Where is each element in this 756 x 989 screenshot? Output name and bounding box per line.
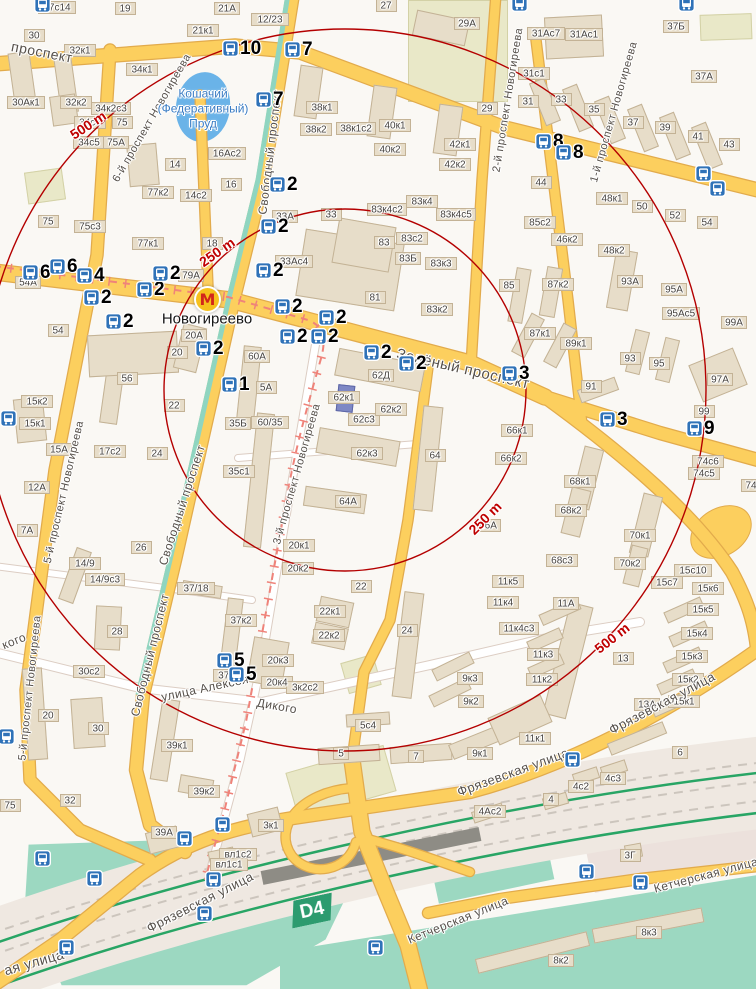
bus-icon bbox=[363, 344, 380, 361]
bus-icon bbox=[228, 666, 245, 683]
building-label: 5с4 bbox=[360, 721, 376, 732]
building-label: 79А bbox=[182, 271, 200, 282]
building-label: 9к1 bbox=[472, 749, 488, 760]
building-label: 83с2 bbox=[401, 234, 423, 245]
bus-stop-number: 10 bbox=[240, 39, 261, 58]
building-label: 24 bbox=[401, 626, 412, 637]
building-label: 97А bbox=[711, 375, 729, 386]
bus-stop[interactable] bbox=[318, 309, 335, 326]
bus-stop[interactable] bbox=[678, 0, 695, 12]
building-label: 11к5 bbox=[498, 577, 518, 588]
building-label: 20к1 bbox=[288, 541, 309, 552]
bus-stop-number: 2 bbox=[328, 327, 339, 346]
building bbox=[87, 331, 179, 378]
building-label: 83к2 bbox=[426, 305, 447, 316]
building-label: 75 bbox=[116, 118, 127, 129]
bus-stop[interactable] bbox=[310, 328, 327, 345]
building-label: 15к6 bbox=[697, 584, 718, 595]
building-label: 29А bbox=[458, 19, 476, 30]
building-label: 32к2 bbox=[65, 98, 86, 109]
building-label: 66к2 bbox=[500, 454, 521, 465]
building-label: 7А bbox=[21, 526, 33, 537]
building-label: 11к4 bbox=[493, 598, 513, 609]
bus-icon bbox=[599, 411, 616, 428]
park bbox=[428, 826, 555, 903]
bus-stop[interactable] bbox=[86, 870, 103, 887]
bus-stop[interactable] bbox=[578, 863, 595, 880]
bus-icon bbox=[49, 258, 66, 275]
building-label: 75 bbox=[4, 801, 15, 812]
building-label: 4с3 bbox=[605, 774, 621, 785]
building-label: 91 bbox=[585, 382, 596, 393]
bus-stop[interactable] bbox=[152, 265, 169, 282]
building-label: 64 bbox=[429, 451, 440, 462]
building-label: 22 bbox=[168, 401, 179, 412]
bus-icon bbox=[22, 264, 39, 281]
building-label: 11к3 bbox=[533, 650, 553, 661]
building-label: 11к2 bbox=[532, 675, 552, 686]
building-label: 29 bbox=[481, 104, 492, 115]
bus-icon bbox=[195, 340, 212, 357]
bus-stop-number: 2 bbox=[297, 327, 308, 346]
bus-stop[interactable] bbox=[274, 298, 291, 315]
building-label: 40к1 bbox=[384, 121, 405, 132]
bus-stop-number: 2 bbox=[336, 308, 347, 327]
school-grounds bbox=[24, 168, 66, 205]
bus-icon bbox=[86, 870, 103, 887]
bus-stop-number: 3 bbox=[519, 364, 530, 383]
building-label: 26 bbox=[135, 543, 146, 554]
building-label: 38к1с2 bbox=[340, 124, 372, 135]
building-label: 38к2 bbox=[305, 125, 326, 136]
building-label: 93А bbox=[621, 277, 639, 288]
building-label: 62к1 bbox=[333, 393, 354, 404]
bus-stop[interactable] bbox=[196, 905, 213, 922]
building-label: 20к4 bbox=[266, 678, 287, 689]
metro-station-name: Новогиреево bbox=[162, 311, 252, 328]
building-label: 24 bbox=[151, 449, 162, 460]
bus-icon bbox=[255, 91, 272, 108]
building-label: 37 bbox=[627, 118, 638, 129]
building-label: 20к2 bbox=[287, 564, 308, 575]
bus-stop-number: 9 bbox=[704, 419, 715, 438]
bus-stop-number: 7 bbox=[273, 90, 284, 109]
bus-icon bbox=[632, 874, 649, 891]
bus-stop-number: 8 bbox=[573, 143, 584, 162]
building-label: 8к3 bbox=[641, 928, 657, 939]
bus-stop[interactable] bbox=[564, 751, 581, 768]
bus-icon bbox=[255, 262, 272, 279]
building-label: 15к4 bbox=[686, 629, 707, 640]
building-label: 83к4с5 bbox=[440, 210, 472, 221]
building-label: 31с1 bbox=[523, 69, 545, 80]
bus-stop[interactable] bbox=[260, 218, 277, 235]
bus-stop-number: 2 bbox=[292, 297, 303, 316]
radius-label: 500 m bbox=[591, 619, 632, 656]
building-label: 14/9 bbox=[75, 559, 94, 570]
bus-stop-number: 2 bbox=[123, 312, 134, 331]
building-label: 8к2 bbox=[553, 956, 569, 967]
building-label: 44 bbox=[535, 178, 546, 189]
bus-stop[interactable] bbox=[599, 411, 616, 428]
bus-stop[interactable] bbox=[228, 666, 245, 683]
building-label: 37А bbox=[695, 72, 713, 83]
building-label: 75с3 bbox=[79, 222, 101, 233]
building-label: 15к1 bbox=[24, 419, 45, 430]
building-label: 87к2 bbox=[547, 280, 568, 291]
bus-stop-number: 7 bbox=[302, 40, 313, 59]
bus-icon bbox=[105, 313, 122, 330]
building-label: 56 bbox=[121, 374, 132, 385]
bus-stop-number: 2 bbox=[213, 339, 224, 358]
building-label: 31Ас7 bbox=[532, 29, 560, 40]
school-grounds bbox=[340, 654, 382, 694]
building-label: 7 bbox=[413, 752, 419, 763]
bus-stop-number: 2 bbox=[381, 343, 392, 362]
building-label: 5А bbox=[260, 383, 272, 394]
bus-icon bbox=[136, 281, 153, 298]
building-label: 83к4 bbox=[411, 197, 432, 208]
building-label: 20 bbox=[171, 348, 182, 359]
building-label: 9к2 bbox=[463, 697, 479, 708]
bus-stop[interactable] bbox=[255, 262, 272, 279]
bus-icon bbox=[535, 133, 552, 150]
building-label: 6 bbox=[677, 748, 683, 759]
bus-icon bbox=[501, 365, 518, 382]
building-label: 19 bbox=[119, 4, 130, 15]
building-label: 21А bbox=[218, 4, 236, 15]
building-label: 30 bbox=[28, 31, 39, 42]
building-label: 33 bbox=[555, 95, 566, 106]
bus-icon bbox=[222, 40, 239, 57]
building-label: 11А bbox=[557, 599, 574, 610]
building-label: 34к1 bbox=[131, 65, 152, 76]
building-label: 16Ас2 bbox=[213, 149, 241, 160]
building-label: 22к1 bbox=[319, 607, 340, 618]
building-label: 15с10 bbox=[679, 566, 706, 577]
street-label: Дикого bbox=[256, 696, 299, 717]
bus-stop[interactable] bbox=[367, 939, 384, 956]
bus-stop[interactable] bbox=[279, 328, 296, 345]
bus-stop[interactable] bbox=[555, 144, 572, 161]
building-label: 37Б bbox=[667, 22, 685, 33]
bus-stop[interactable] bbox=[363, 344, 380, 361]
building-label: 22к2 bbox=[318, 631, 339, 642]
building-label: 35 bbox=[588, 105, 599, 116]
building-label: 54 bbox=[52, 326, 63, 337]
bus-stop-number: 3 bbox=[617, 410, 628, 429]
building-label: 39 bbox=[659, 123, 670, 134]
road-casing bbox=[545, 397, 756, 460]
building-label: 43 bbox=[723, 140, 734, 151]
bus-stop[interactable] bbox=[269, 176, 286, 193]
building-label: 30Ак1 bbox=[12, 98, 40, 109]
building-label: 48к2 bbox=[603, 246, 624, 257]
building-label: 95А bbox=[665, 285, 683, 296]
bus-icon bbox=[318, 309, 335, 326]
building-label: 11к1 bbox=[525, 734, 545, 745]
building-label: 68к1 bbox=[569, 477, 590, 488]
building-label: 31 bbox=[522, 97, 533, 108]
building bbox=[317, 743, 380, 764]
building-label: 70к1 bbox=[629, 531, 650, 542]
building-label: 34с5 bbox=[78, 138, 100, 149]
building-label: 20 bbox=[42, 711, 53, 722]
building-label: 35Б bbox=[229, 419, 247, 430]
building-label: 99 bbox=[698, 407, 709, 418]
building-label: 14с2 bbox=[185, 191, 207, 202]
bus-icon bbox=[260, 218, 277, 235]
building-label: 85 bbox=[503, 281, 514, 292]
street-label: кого bbox=[0, 630, 28, 652]
building bbox=[659, 112, 691, 161]
bus-icon bbox=[58, 939, 75, 956]
bus-stop[interactable] bbox=[709, 180, 726, 197]
bus-icon bbox=[555, 144, 572, 161]
building-label: 74с6 bbox=[697, 457, 719, 468]
bus-icon bbox=[511, 0, 528, 12]
building-label: 42к2 bbox=[444, 160, 465, 171]
bus-stop-number: 1 bbox=[239, 375, 250, 394]
building-label: 39к1 bbox=[166, 741, 187, 752]
building-label: 75 bbox=[42, 217, 53, 228]
building-label: 12А bbox=[28, 483, 46, 494]
bus-stop[interactable] bbox=[34, 0, 51, 13]
bus-icon bbox=[709, 180, 726, 197]
building bbox=[539, 266, 563, 318]
bus-stop[interactable] bbox=[83, 289, 100, 306]
building-label: 95 bbox=[653, 359, 664, 370]
bus-stop[interactable] bbox=[176, 830, 193, 847]
bus-stop[interactable] bbox=[686, 420, 703, 437]
building-label: 33 bbox=[325, 210, 336, 221]
bus-icon bbox=[578, 863, 595, 880]
bus-icon bbox=[398, 355, 415, 372]
bus-stop[interactable] bbox=[105, 313, 122, 330]
bus-stop[interactable] bbox=[22, 264, 39, 281]
bus-icon bbox=[686, 420, 703, 437]
building-label: 11к4с3 bbox=[504, 624, 535, 635]
building-label: 62Д bbox=[372, 371, 390, 382]
bus-icon bbox=[152, 265, 169, 282]
bus-stop[interactable] bbox=[205, 871, 222, 888]
bus-stop[interactable] bbox=[398, 355, 415, 372]
bus-icon bbox=[221, 376, 238, 393]
school-grounds bbox=[700, 13, 753, 41]
building-label: 40к2 bbox=[379, 145, 400, 156]
street-label: Свободный проспект bbox=[156, 443, 208, 567]
building-label: 68с3 bbox=[551, 556, 573, 567]
road bbox=[545, 397, 756, 460]
building-label: 21к1 bbox=[192, 26, 213, 37]
building bbox=[507, 267, 531, 324]
building-label: 39к2 bbox=[193, 787, 214, 798]
bus-icon bbox=[176, 830, 193, 847]
building-label: 4 bbox=[548, 795, 554, 806]
building-label: 9к3 bbox=[462, 674, 478, 685]
building-label: 89к1 bbox=[565, 339, 586, 350]
building-label: 4с2 bbox=[573, 782, 589, 793]
building-label: 20к3 bbox=[267, 656, 288, 667]
building-label: 5 bbox=[338, 749, 344, 760]
bus-stop[interactable] bbox=[221, 376, 238, 393]
bus-stop[interactable] bbox=[284, 41, 301, 58]
building-label: 22 bbox=[355, 582, 366, 593]
bus-stop[interactable] bbox=[58, 939, 75, 956]
bus-stop[interactable] bbox=[501, 365, 518, 382]
bus-icon bbox=[274, 298, 291, 315]
building-label: 77к2 bbox=[147, 188, 168, 199]
building-label: 83 bbox=[378, 238, 389, 249]
bus-stop[interactable] bbox=[214, 816, 231, 833]
bus-icon bbox=[367, 939, 384, 956]
building-label: 37к2 bbox=[230, 616, 251, 627]
bus-stop[interactable] bbox=[511, 0, 528, 12]
building-label: вл1с1 bbox=[215, 860, 242, 871]
bus-icon bbox=[0, 728, 15, 745]
building-label: 85с2 bbox=[529, 218, 551, 229]
bus-icon bbox=[34, 0, 51, 13]
building-label: 60/35 bbox=[257, 418, 282, 429]
bus-icon bbox=[83, 289, 100, 306]
building-label: 60А bbox=[248, 352, 266, 363]
building-label: 66к1 bbox=[506, 426, 527, 437]
bus-icon bbox=[34, 850, 51, 867]
building-label: 15к2 bbox=[26, 397, 47, 408]
bus-stop[interactable] bbox=[535, 133, 552, 150]
building-label: 13 bbox=[617, 654, 628, 665]
building bbox=[243, 412, 275, 548]
bus-stop-number: 5 bbox=[246, 665, 257, 684]
building-label: 41 bbox=[692, 132, 703, 143]
map-canvas[interactable]: Кошачий (Федеративный) Пруд М Новогиреев… bbox=[0, 0, 756, 989]
bus-stop-number: 2 bbox=[170, 264, 181, 283]
building-label: 83к3 bbox=[430, 259, 451, 270]
bus-stop[interactable] bbox=[49, 258, 66, 275]
building-label: 35с1 bbox=[228, 467, 250, 478]
building-label: 74 bbox=[745, 481, 756, 492]
metro-m-logo: М bbox=[200, 290, 216, 309]
bus-stop-number: 4 bbox=[94, 266, 105, 285]
building-label: 16 bbox=[225, 180, 236, 191]
bus-stop-number: 2 bbox=[278, 217, 289, 236]
building-label: 46к2 bbox=[556, 235, 577, 246]
metro-station-icon[interactable]: М bbox=[194, 286, 221, 313]
bus-stop-number: 2 bbox=[101, 288, 112, 307]
building-label: 3к2с2 bbox=[292, 683, 318, 694]
bus-icon bbox=[279, 328, 296, 345]
road-junction-area bbox=[680, 494, 756, 570]
building-label: 15к5 bbox=[692, 605, 713, 616]
parking-lot bbox=[579, 781, 756, 893]
building-label: 62с3 bbox=[353, 415, 375, 426]
bus-stop[interactable] bbox=[255, 91, 272, 108]
building-label: 38к1 bbox=[311, 103, 332, 114]
bus-stop[interactable] bbox=[222, 40, 239, 57]
bus-stop-number: 2 bbox=[287, 175, 298, 194]
building-label: 14 bbox=[169, 160, 180, 171]
building-label: 81 bbox=[369, 293, 380, 304]
building-label: 87к1 bbox=[529, 329, 550, 340]
bus-icon bbox=[284, 41, 301, 58]
building-label: 4Ас2 bbox=[479, 807, 502, 818]
building-label: 30 bbox=[92, 724, 103, 735]
bus-stop[interactable] bbox=[0, 410, 17, 427]
building-label: 99А bbox=[725, 318, 743, 329]
bus-stop[interactable] bbox=[0, 728, 15, 745]
building-label: 62к3 bbox=[356, 449, 377, 460]
bus-icon bbox=[214, 816, 231, 833]
building-label: 52 bbox=[669, 211, 680, 222]
bus-icon bbox=[205, 871, 222, 888]
building-label: 95Ас5 bbox=[667, 309, 695, 320]
building-label: 64А bbox=[339, 497, 357, 508]
building-label: 3к1 bbox=[263, 821, 279, 832]
building-label: 62к2 bbox=[380, 405, 401, 416]
building-label: 74с5 bbox=[693, 469, 715, 480]
building-label: 14/9с3 bbox=[90, 575, 120, 586]
building-label: 15к3 bbox=[681, 652, 702, 663]
bus-icon bbox=[196, 905, 213, 922]
bus-stop[interactable] bbox=[632, 874, 649, 891]
building-label: 50 bbox=[636, 202, 647, 213]
bus-icon bbox=[564, 751, 581, 768]
bus-icon bbox=[678, 0, 695, 12]
bus-stop-number: 2 bbox=[416, 354, 427, 373]
bus-stop[interactable] bbox=[76, 267, 93, 284]
building-label: 39А bbox=[155, 828, 173, 839]
building-label: 37/18 bbox=[183, 584, 208, 595]
bus-stop[interactable] bbox=[136, 281, 153, 298]
bus-stop[interactable] bbox=[34, 850, 51, 867]
building-label: 33Ас4 bbox=[280, 257, 308, 268]
building-label: 3Г bbox=[625, 851, 636, 862]
building-label: 27 bbox=[380, 1, 391, 12]
building bbox=[392, 591, 425, 699]
building-label: 75А bbox=[107, 138, 125, 149]
building-label: 12/23 bbox=[257, 15, 282, 26]
building-label: 17с2 bbox=[99, 447, 121, 458]
building-label: 48к1 bbox=[601, 194, 622, 205]
building-label: 83к4с2 bbox=[371, 205, 403, 216]
bus-stop-number: 2 bbox=[154, 280, 165, 299]
building-label: 15с7 bbox=[656, 578, 678, 589]
building-label: 77к1 bbox=[137, 239, 158, 250]
building-label: 54 bbox=[701, 218, 712, 229]
street-label: ая улица bbox=[2, 946, 66, 978]
bus-icon bbox=[269, 176, 286, 193]
building-label: 30с2 bbox=[78, 667, 100, 678]
bus-icon bbox=[0, 410, 17, 427]
pond-label: Кошачий (Федеративный) Пруд bbox=[158, 87, 249, 132]
building-label: 42к1 bbox=[449, 140, 470, 151]
building-label: 70к2 bbox=[619, 559, 640, 570]
building-label: 15А bbox=[50, 445, 68, 456]
bus-stop-number: 2 bbox=[273, 261, 284, 280]
building-label: 31Ас1 bbox=[570, 30, 598, 41]
building-label: 83Б bbox=[399, 254, 417, 265]
building-label: 68к2 bbox=[560, 506, 581, 517]
bus-icon bbox=[76, 267, 93, 284]
building-label: 93 bbox=[624, 354, 635, 365]
bus-icon bbox=[310, 328, 327, 345]
building-label: 28 bbox=[111, 627, 122, 638]
building-label: 32 bbox=[64, 796, 75, 807]
bus-stop[interactable] bbox=[195, 340, 212, 357]
